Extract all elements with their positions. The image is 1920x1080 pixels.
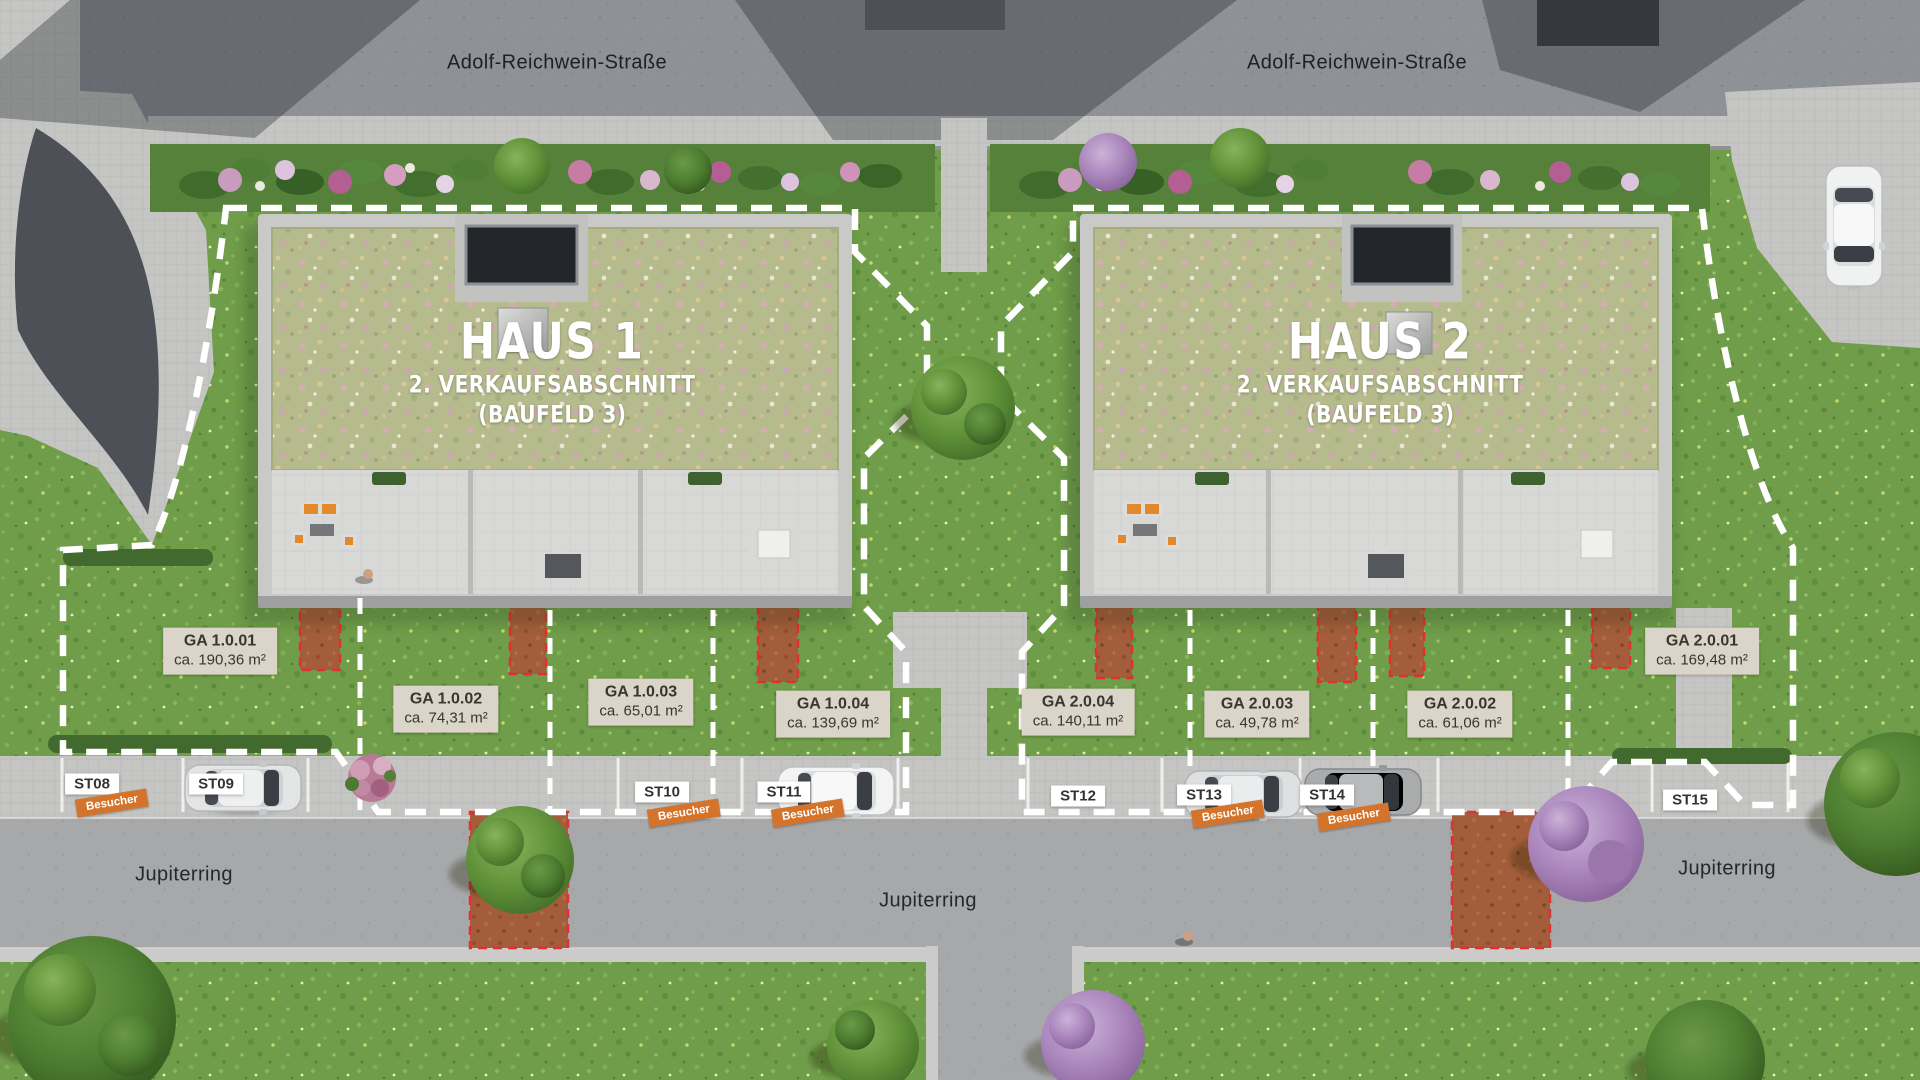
st12-label: ST12 <box>1051 786 1105 807</box>
garden-area-id: GA 1.0.01 <box>174 632 266 652</box>
ga-2-0-03-label: GA 2.0.03 ca. 49,78 m² <box>1204 691 1309 738</box>
street-label-jupiterring-left: Jupiterring <box>135 864 233 887</box>
street-label-adolf-reichwein-strasse-left: Adolf-Reichwein-Straße <box>447 52 667 75</box>
street-label-adolf-reichwein-strasse-right: Adolf-Reichwein-Straße <box>1247 52 1467 75</box>
ga-1-0-01-label: GA 1.0.01 ca. 190,36 m² <box>163 628 277 675</box>
haus-2-title: HAUS 2 <box>1288 317 1473 367</box>
haus-1-note: (BAUFELD 3) <box>478 403 626 427</box>
garden-area-size: ca. 49,78 m² <box>1215 715 1298 734</box>
garden-area-size: ca. 139,69 m² <box>787 715 879 734</box>
ga-1-0-04-label: GA 1.0.04 ca. 139,69 m² <box>776 691 890 738</box>
garden-area-id: GA 2.0.03 <box>1215 695 1298 715</box>
st11-label: ST11 <box>757 782 810 803</box>
st14-label: ST14 <box>1300 785 1354 806</box>
haus-1-subtitle: 2. VERKAUFSABSCHNITT <box>409 373 696 397</box>
garden-area-id: GA 2.0.01 <box>1656 632 1748 652</box>
site-plan: Adolf-Reichwein-Straße Adolf-Reichwein-S… <box>0 0 1920 1080</box>
st15-label: ST15 <box>1663 790 1717 811</box>
garden-area-id: GA 2.0.04 <box>1033 693 1124 713</box>
st11-besucher-tag: Besucher <box>771 798 845 827</box>
st10-besucher-tag: Besucher <box>647 798 721 827</box>
garden-area-size: ca. 190,36 m² <box>174 652 266 671</box>
st10-label: ST10 <box>635 782 689 803</box>
street-label-jupiterring-right: Jupiterring <box>1678 858 1776 881</box>
st14-besucher-tag: Besucher <box>1317 802 1391 831</box>
garden-area-id: GA 1.0.02 <box>404 690 487 710</box>
haus-2-note: (BAUFELD 3) <box>1306 403 1454 427</box>
haus-1-title-block: HAUS 1 2. VERKAUFSABSCHNITT (BAUFELD 3) <box>381 317 722 428</box>
st08-label: ST08 <box>65 774 119 795</box>
ga-2-0-04-label: GA 2.0.04 ca. 140,11 m² <box>1022 689 1135 736</box>
garden-area-size: ca. 61,06 m² <box>1418 715 1501 734</box>
garden-area-id: GA 1.0.04 <box>787 695 879 715</box>
garden-area-size: ca. 65,01 m² <box>599 703 682 722</box>
haus-2-subtitle: 2. VERKAUFSABSCHNITT <box>1237 373 1524 397</box>
haus-1-title: HAUS 1 <box>460 317 645 367</box>
st13-label: ST13 <box>1177 785 1231 806</box>
labels-layer: Adolf-Reichwein-Straße Adolf-Reichwein-S… <box>0 0 1920 1080</box>
ga-2-0-01-label: GA 2.0.01 ca. 169,48 m² <box>1645 628 1759 675</box>
garden-area-size: ca. 169,48 m² <box>1656 652 1748 671</box>
ga-1-0-03-label: GA 1.0.03 ca. 65,01 m² <box>588 679 693 726</box>
street-label-jupiterring-center: Jupiterring <box>879 890 977 913</box>
haus-2-title-block: HAUS 2 2. VERKAUFSABSCHNITT (BAUFELD 3) <box>1209 317 1550 428</box>
garden-area-size: ca. 140,11 m² <box>1033 713 1124 732</box>
st09-label: ST09 <box>189 774 243 795</box>
ga-2-0-02-label: GA 2.0.02 ca. 61,06 m² <box>1407 691 1512 738</box>
garden-area-id: GA 2.0.02 <box>1418 695 1501 715</box>
garden-area-size: ca. 74,31 m² <box>404 710 487 729</box>
garden-area-id: GA 1.0.03 <box>599 683 682 703</box>
ga-1-0-02-label: GA 1.0.02 ca. 74,31 m² <box>393 686 498 733</box>
